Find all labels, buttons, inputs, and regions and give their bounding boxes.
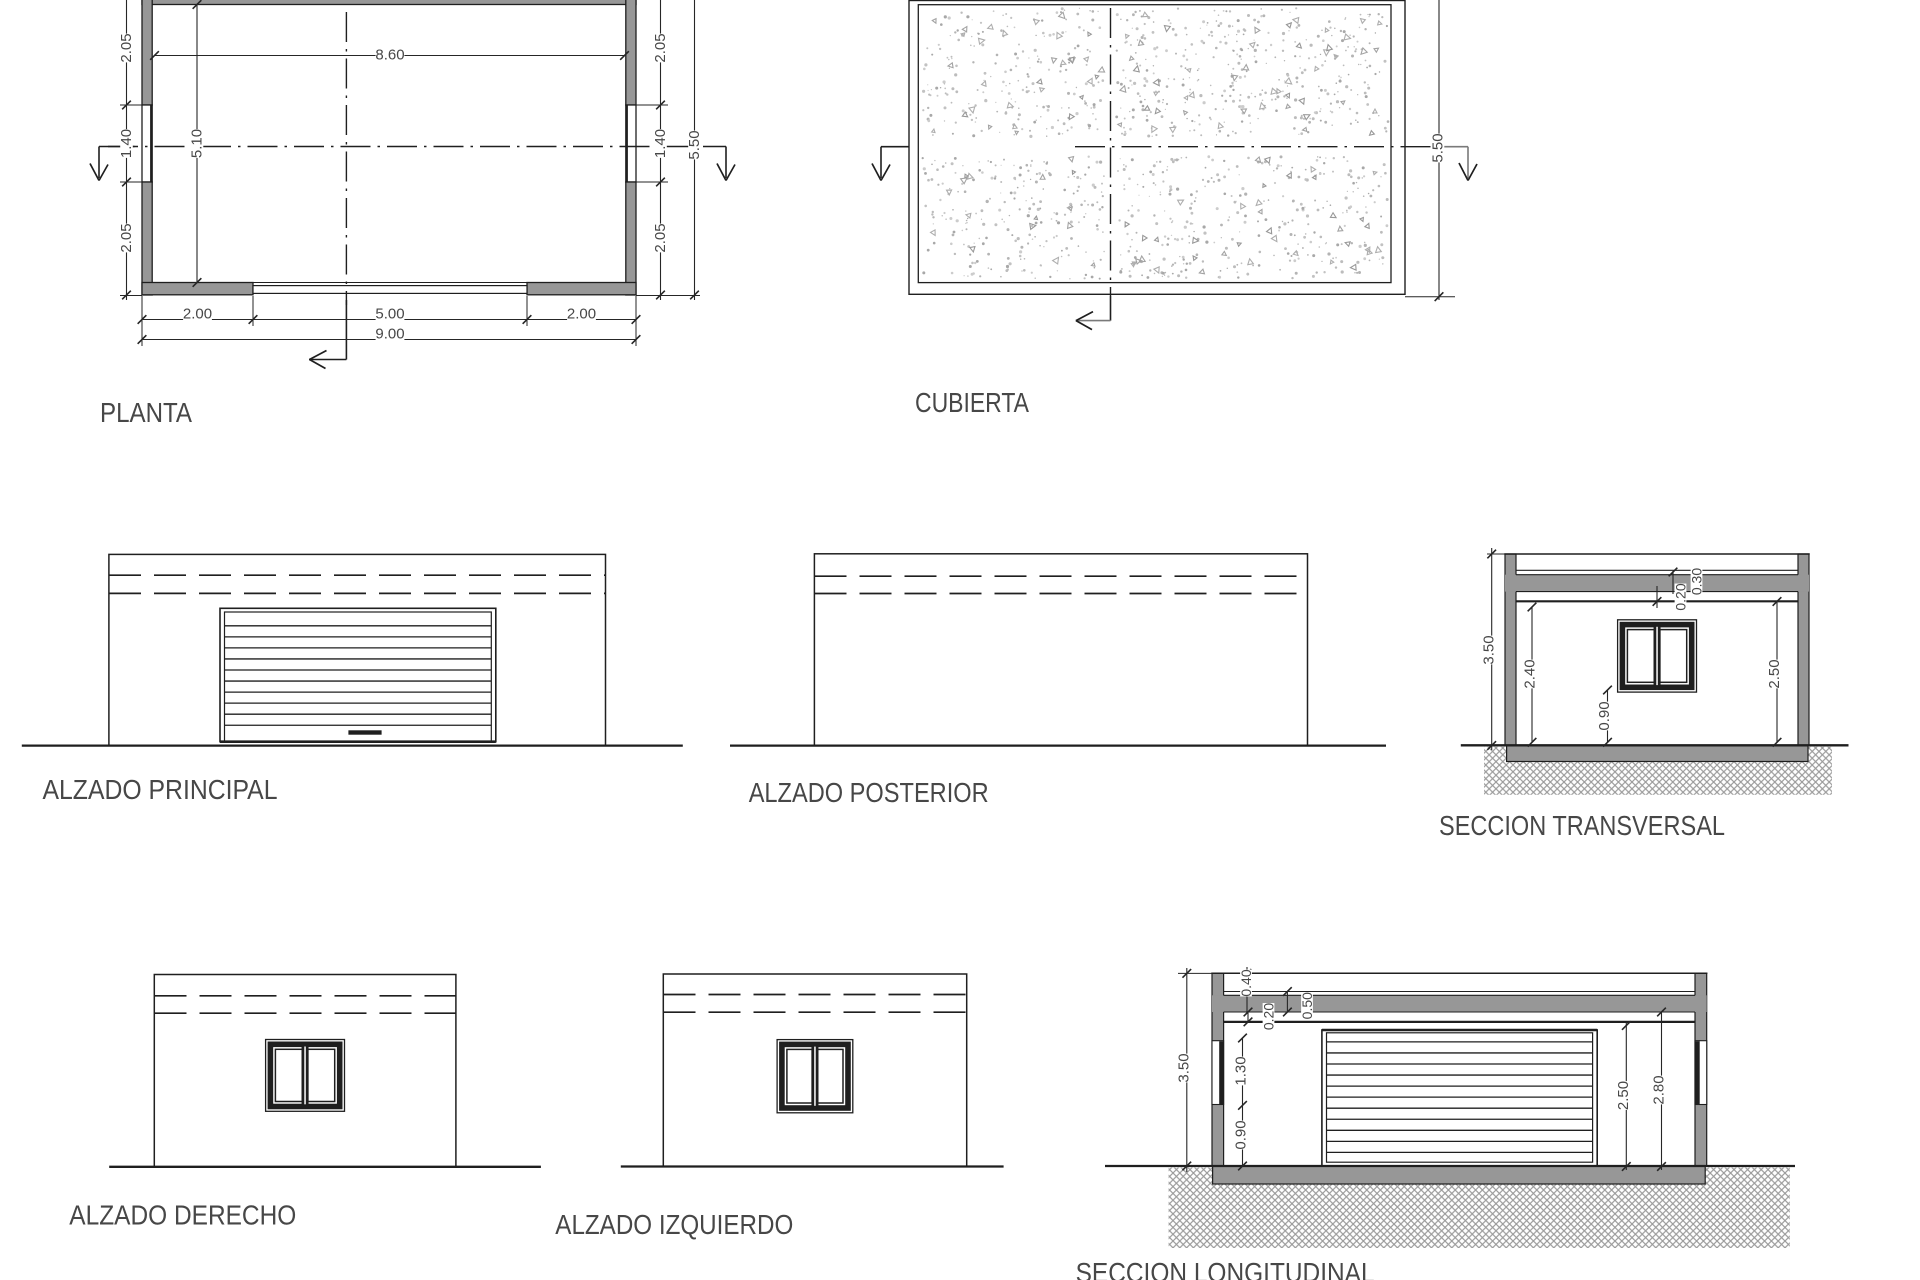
svg-text:2.00: 2.00 (567, 306, 596, 323)
svg-text:SECCION TRANSVERSAL: SECCION TRANSVERSAL (1439, 810, 1725, 841)
svg-text:0.20: 0.20 (1673, 583, 1689, 610)
svg-text:2.05: 2.05 (118, 33, 135, 62)
svg-text:5.50: 5.50 (1430, 133, 1447, 162)
svg-text:2.40: 2.40 (1522, 659, 1539, 688)
svg-text:1.40: 1.40 (652, 129, 669, 158)
svg-text:2.50: 2.50 (1615, 1081, 1632, 1110)
svg-text:CUBIERTA: CUBIERTA (915, 387, 1029, 418)
svg-text:2.05: 2.05 (652, 33, 669, 62)
svg-text:8.60: 8.60 (375, 47, 404, 64)
svg-text:3.50: 3.50 (1481, 635, 1498, 664)
svg-text:0.30: 0.30 (1689, 568, 1705, 595)
svg-text:0.90: 0.90 (1233, 1120, 1250, 1149)
svg-text:5.10: 5.10 (189, 129, 206, 158)
svg-text:5.50: 5.50 (686, 130, 703, 159)
svg-text:2.50: 2.50 (1766, 659, 1783, 688)
svg-text:1.40: 1.40 (118, 129, 135, 158)
svg-text:1.30: 1.30 (1233, 1056, 1250, 1085)
svg-text:2.05: 2.05 (652, 223, 669, 252)
svg-text:PLANTA: PLANTA (100, 397, 192, 428)
svg-text:2.80: 2.80 (1651, 1075, 1668, 1104)
svg-text:9.00: 9.00 (375, 326, 404, 343)
svg-text:0.40: 0.40 (1238, 969, 1254, 996)
svg-text:ALZADO POSTERIOR: ALZADO POSTERIOR (749, 777, 989, 808)
svg-text:0.90: 0.90 (1596, 701, 1613, 730)
svg-text:2.05: 2.05 (118, 223, 135, 252)
svg-text:3.50: 3.50 (1176, 1053, 1193, 1082)
svg-text:ALZADO DERECHO: ALZADO DERECHO (69, 1200, 296, 1231)
svg-text:0.50: 0.50 (1299, 992, 1315, 1019)
svg-text:2.00: 2.00 (183, 306, 212, 323)
svg-text:0.20: 0.20 (1261, 1003, 1277, 1030)
svg-text:ALZADO IZQUIERDO: ALZADO IZQUIERDO (555, 1209, 793, 1240)
svg-text:ALZADO PRINCIPAL: ALZADO PRINCIPAL (43, 774, 278, 805)
svg-text:5.00: 5.00 (375, 306, 404, 323)
svg-text:SECCION LONGITUDINAL: SECCION LONGITUDINAL (1076, 1257, 1375, 1280)
